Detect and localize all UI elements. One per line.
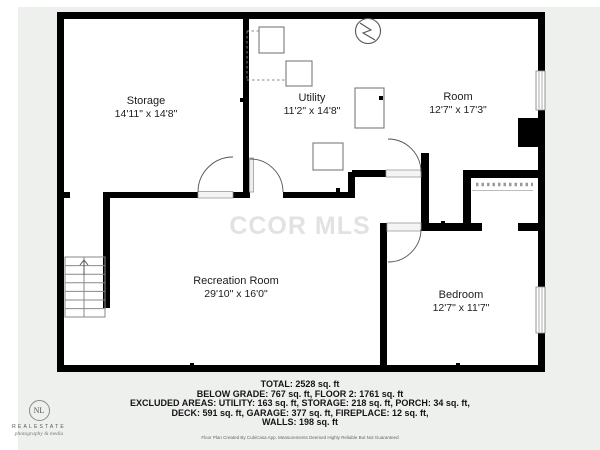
area-summary: TOTAL: 2528 sq. ft BELOW GRADE: 767 sq. … bbox=[0, 380, 600, 443]
floor-plan-page: CCOR MLS Storage 14'11" x 14'8" Utility … bbox=[0, 0, 600, 450]
room-label-storage: Storage 14'11" x 14'8" bbox=[96, 95, 196, 121]
room-dimensions: 29'10" x 16'0" bbox=[161, 288, 311, 301]
disclaimer-text: Floor Plan Created By CubiCasa App. Meas… bbox=[0, 433, 600, 443]
chimney-block bbox=[518, 118, 541, 147]
room-label-utility: Utility 11'2" x 14'8" bbox=[262, 92, 362, 118]
room-dimensions: 12'7" x 11'7" bbox=[411, 302, 511, 315]
logo-monogram-icon: NL bbox=[29, 400, 50, 421]
room-name: Bedroom bbox=[411, 289, 511, 302]
room-label-bedroom: Bedroom 12'7" x 11'7" bbox=[411, 289, 511, 315]
room-name: Recreation Room bbox=[161, 275, 311, 288]
room-name: Storage bbox=[96, 95, 196, 108]
room-label-recreation-room: Recreation Room 29'10" x 16'0" bbox=[161, 275, 311, 301]
room-dimensions: 14'11" x 14'8" bbox=[96, 108, 196, 121]
realestate-logo: NL REALESTATE photography & media bbox=[6, 400, 72, 437]
window-bedroom bbox=[536, 287, 545, 333]
room-dimensions: 11'2" x 14'8" bbox=[262, 105, 362, 118]
room-name: Room bbox=[408, 91, 508, 104]
room-label-room: Room 12'7" x 17'3" bbox=[408, 91, 508, 117]
room-name: Utility bbox=[262, 92, 362, 105]
area-line: WALLS: 198 sq. ft bbox=[0, 418, 600, 428]
logo-name: REALESTATE bbox=[6, 424, 72, 430]
logo-tagline: photography & media bbox=[6, 431, 72, 437]
window-room bbox=[536, 71, 545, 110]
room-dimensions: 12'7" x 17'3" bbox=[408, 104, 508, 117]
